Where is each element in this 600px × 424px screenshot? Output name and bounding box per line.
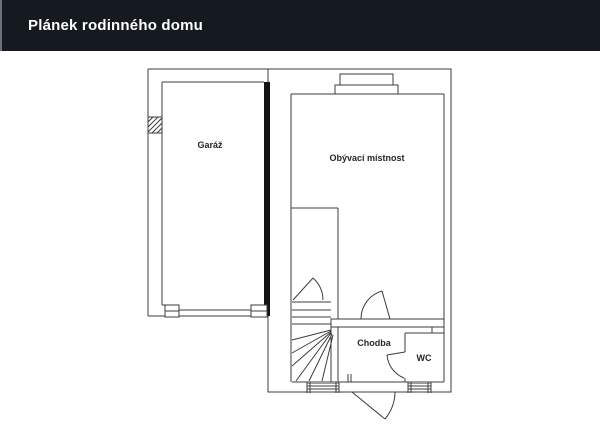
page-title: Plánek rodinného domu bbox=[28, 17, 203, 34]
thick-party-wall bbox=[264, 82, 270, 316]
room-label-wc: WC bbox=[417, 353, 432, 363]
header-bar: Plánek rodinného domu bbox=[0, 0, 600, 51]
stairs-door bbox=[293, 278, 323, 300]
living-room-door bbox=[361, 291, 390, 319]
staircase bbox=[292, 302, 338, 382]
hallway-walls bbox=[331, 319, 444, 333]
floor-plan: Garáž Obývací místnost Chodba WC bbox=[0, 51, 600, 424]
floor-plan-canvas: Garáž Obývací místnost Chodba WC bbox=[0, 51, 600, 424]
room-label-garage: Garáž bbox=[197, 140, 223, 150]
garage-walls bbox=[162, 82, 270, 316]
window-1 bbox=[307, 382, 339, 393]
garage-door bbox=[165, 305, 267, 317]
outer-walls bbox=[148, 69, 451, 392]
room-label-living-room: Obývací místnost bbox=[329, 153, 404, 163]
wc-door bbox=[387, 352, 405, 378]
winder-steps bbox=[292, 330, 333, 381]
app-window: Plánek rodinného domu bbox=[0, 0, 600, 424]
room-label-hallway: Chodba bbox=[357, 338, 391, 348]
entrance-door bbox=[352, 392, 395, 419]
wall-hatch bbox=[148, 117, 162, 133]
top-window bbox=[335, 74, 398, 94]
window-2 bbox=[408, 382, 431, 393]
bottom-walls bbox=[292, 374, 444, 382]
